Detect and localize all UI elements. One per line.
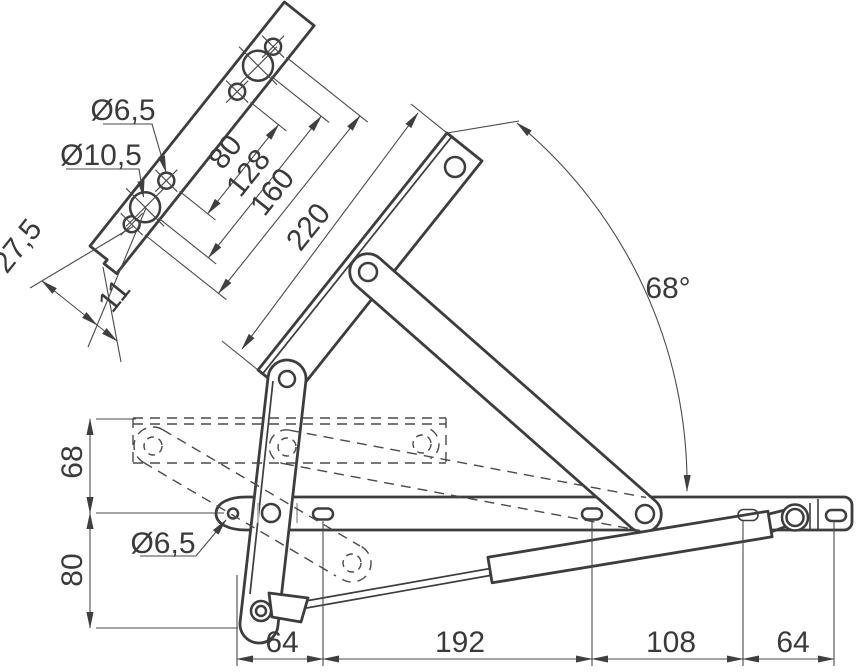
- lid-rail-hole: [445, 157, 465, 177]
- label-base-seg-2: 192: [435, 626, 485, 659]
- label-dia-top-big: Ø10,5: [60, 139, 142, 172]
- label-base-seg-1: 64: [265, 626, 298, 659]
- base-slot-4: [826, 510, 846, 521]
- base-slot-1: [313, 509, 333, 520]
- front-arm-top-hole: [279, 371, 295, 387]
- label-opening-angle: 68°: [645, 272, 690, 305]
- label-base-seg-4: 64: [776, 626, 809, 659]
- label-dia-top-small: Ø6,5: [90, 94, 155, 127]
- label-base-seg-3: 108: [646, 626, 696, 659]
- base-slot-2: [582, 509, 602, 520]
- rear-arm-pivot-hole: [636, 505, 654, 523]
- front-arm-pivot-hole: [262, 504, 280, 522]
- rear-arm-top-hole: [359, 263, 377, 281]
- label-dia-base-hole: Ø6,5: [130, 527, 195, 560]
- label-height-lower: 80: [56, 553, 89, 586]
- technical-drawing-canvas: Ø6,5 Ø10,5 80 128 160 220 27,5 11 68° 68…: [0, 0, 859, 672]
- hinge-mechanism-drawing: Ø6,5 Ø10,5 80 128 160 220 27,5 11 68° 68…: [0, 0, 859, 672]
- label-height-upper: 68: [56, 445, 89, 478]
